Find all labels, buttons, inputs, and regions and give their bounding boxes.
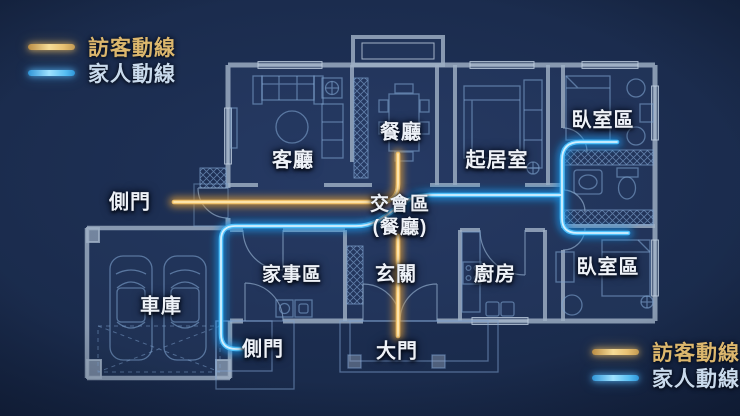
label-sitting-room: 起居室: [466, 144, 529, 173]
legend-family-row: 家人動線: [592, 367, 740, 389]
label-main-door: 大門: [376, 335, 418, 364]
label-garage: 車庫: [140, 290, 182, 319]
label-dining-room: 餐廳: [380, 116, 422, 145]
label-junction-line1: 交會區: [370, 193, 430, 216]
label-living-room: 客廳: [272, 144, 314, 173]
label-bedroom-lower: 臥室區: [577, 251, 640, 280]
label-side-door-left: 側門: [109, 186, 151, 215]
label-side-door-lower: 側門: [242, 333, 284, 362]
label-housework-area: 家事區: [262, 260, 322, 287]
label-junction: 交會區 (餐廳): [370, 193, 430, 239]
legend-top-left: 訪客動線 家人動線: [28, 36, 176, 84]
label-kitchen: 廚房: [474, 258, 516, 287]
family-legend-label: 家人動線: [652, 363, 740, 393]
family-legend-label: 家人動線: [88, 58, 176, 88]
legend-family-row: 家人動線: [28, 62, 176, 84]
legend-visitor-row: 訪客動線: [592, 341, 740, 363]
label-junction-line2: (餐廳): [370, 216, 430, 239]
floorplan-scene: 客廳 餐廳 起居室 臥室區 臥室區 車庫 家事區 玄關 廚房 側門 側門 大門 …: [0, 0, 740, 416]
family-line-swatch: [28, 70, 75, 76]
label-bedroom-upper: 臥室區: [572, 104, 635, 133]
label-entrance-hall: 玄關: [375, 258, 417, 287]
visitor-line-swatch: [592, 349, 639, 355]
family-line-swatch: [592, 375, 639, 381]
legend-bottom-right: 訪客動線 家人動線: [592, 341, 740, 389]
legend-visitor-row: 訪客動線: [28, 36, 176, 58]
visitor-line-swatch: [28, 44, 75, 50]
